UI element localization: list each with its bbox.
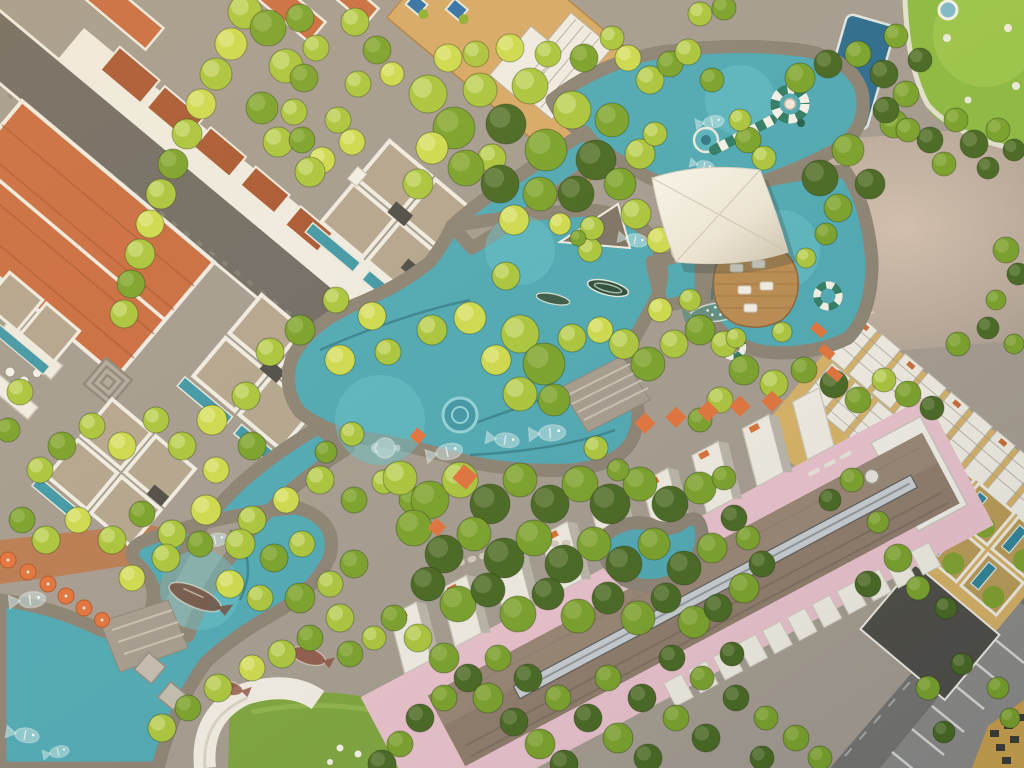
resort-aerial-scene: Aerial drone view of a tropical resort: … — [0, 0, 1024, 768]
lighting-overlay — [0, 0, 1024, 768]
aerial-photo-stage: Aerial drone view of a tropical resort: … — [0, 0, 1024, 768]
